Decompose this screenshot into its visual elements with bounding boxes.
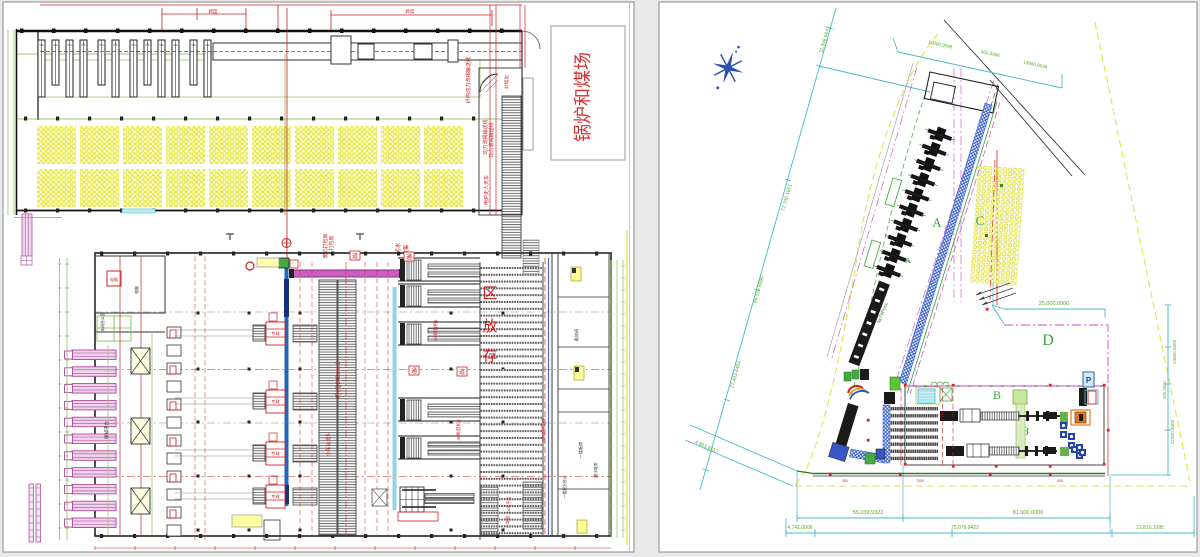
svg-text:14000.0000: 14000.0000 — [1172, 339, 1177, 364]
svg-text:通: 通 — [406, 253, 412, 261]
svg-text:4#纵剪机3: 4#纵剪机3 — [455, 419, 462, 441]
svg-text:道: 道 — [459, 368, 465, 376]
svg-text:锅炉和煤场: 锅炉和煤场 — [573, 52, 593, 142]
svg-text:小车道: 小车道 — [504, 516, 510, 528]
svg-text:P: P — [1086, 376, 1092, 385]
svg-text:专政: 专政 — [271, 398, 280, 405]
svg-text:专政: 专政 — [271, 493, 280, 500]
svg-text:7000: 7000 — [916, 479, 924, 483]
svg-text:300: 300 — [842, 479, 848, 483]
svg-text:通: 通 — [411, 367, 417, 375]
svg-text:22300.0000: 22300.0000 — [1170, 419, 1175, 444]
svg-text:跨度: 跨度 — [209, 8, 218, 15]
svg-text:电脑: 电脑 — [133, 286, 139, 294]
svg-text:4,741.0000: 4,741.0000 — [787, 525, 812, 531]
svg-text:55,039.9322: 55,039.9322 — [853, 510, 884, 516]
svg-text:废纸打包房: 废纸打包房 — [322, 233, 329, 258]
svg-text:300: 300 — [1057, 479, 1063, 483]
svg-text:6533列车线: 6533列车线 — [540, 418, 547, 442]
svg-text:电炉无人天车: 电炉无人天车 — [483, 175, 490, 205]
svg-text:打包房: 打包房 — [328, 235, 335, 250]
svg-text:放: 放 — [482, 318, 497, 335]
svg-text:动力流褐输送线: 动力流褐输送线 — [482, 119, 489, 154]
svg-text:C: C — [976, 213, 985, 228]
svg-text:观修间: 观修间 — [573, 329, 580, 342]
svg-text:跨度: 跨度 — [406, 8, 415, 15]
svg-text:纤构动力流褐输送线: 纤构动力流褐输送线 — [464, 57, 472, 104]
svg-text:废水堆房: 废水堆房 — [593, 462, 598, 477]
svg-text:小车轨道5: 小车轨道5 — [325, 433, 332, 456]
svg-text:A: A — [932, 215, 942, 230]
svg-text:妙墙边: 妙墙边 — [503, 75, 510, 89]
svg-text:B: B — [993, 388, 1001, 402]
svg-text:21,810.1095: 21,810.1095 — [1136, 525, 1164, 531]
svg-text:75,079.9422: 75,079.9422 — [951, 525, 979, 531]
svg-text:保却平台: 保却平台 — [103, 421, 110, 439]
svg-text:500.0000: 500.0000 — [1162, 381, 1167, 399]
svg-text:车间办公室: 车间办公室 — [100, 312, 105, 331]
svg-text:一楼配水办公: 一楼配水办公 — [562, 475, 567, 498]
svg-text:道: 道 — [352, 252, 358, 260]
svg-text:专政: 专政 — [271, 330, 280, 337]
svg-text:1#水平运: 1#水平运 — [505, 497, 511, 513]
svg-text:D: D — [1042, 332, 1054, 349]
svg-text:存: 存 — [482, 348, 497, 365]
svg-text:切 (Q240mm2: 切 (Q240mm2 — [335, 361, 342, 399]
svg-text:电脑: 电脑 — [110, 276, 118, 282]
svg-text:专政: 专政 — [271, 450, 280, 457]
svg-text:6#纵剪机5: 6#纵剪机5 — [432, 319, 439, 341]
svg-text:功力液褐输送线: 功力液褐输送线 — [488, 122, 495, 157]
svg-text:一楼板房: 一楼板房 — [577, 442, 584, 459]
svg-text:81,000.0000: 81,000.0000 — [1013, 510, 1044, 516]
svg-text:区: 区 — [482, 285, 497, 302]
svg-text:25,000.0000: 25,000.0000 — [1039, 301, 1070, 307]
